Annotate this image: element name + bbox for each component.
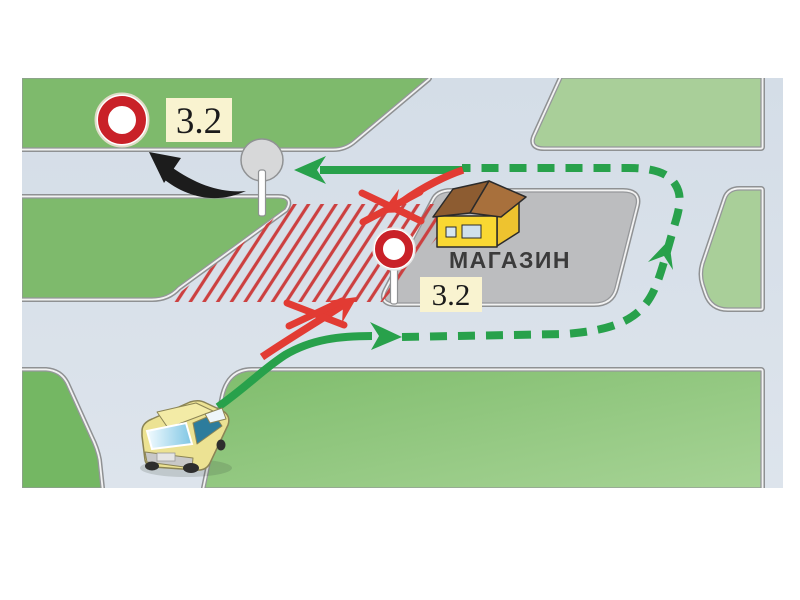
- car-wheel: [183, 463, 199, 473]
- island-sign-label: 3.2: [420, 277, 482, 312]
- car-wheel: [217, 440, 226, 451]
- building-window: [462, 225, 481, 238]
- sign-code-text: 3.2: [176, 101, 222, 142]
- building-window: [446, 227, 456, 237]
- shop-label: МАГАЗИН: [449, 247, 571, 273]
- roadside-prohibition-sign: [96, 94, 149, 147]
- car-license-plate: [157, 453, 175, 461]
- slide: МАГАЗИН 3.2: [0, 0, 800, 600]
- grass-top-right: [534, 78, 761, 147]
- sign-pole: [259, 170, 266, 216]
- car-wheel: [145, 462, 159, 471]
- sign-code-text: 3.2: [432, 277, 471, 312]
- roadside-sign-label: 3.2: [166, 98, 232, 142]
- grass-bottom-right: [205, 371, 761, 488]
- traffic-scene-illustration: МАГАЗИН 3.2: [22, 78, 783, 488]
